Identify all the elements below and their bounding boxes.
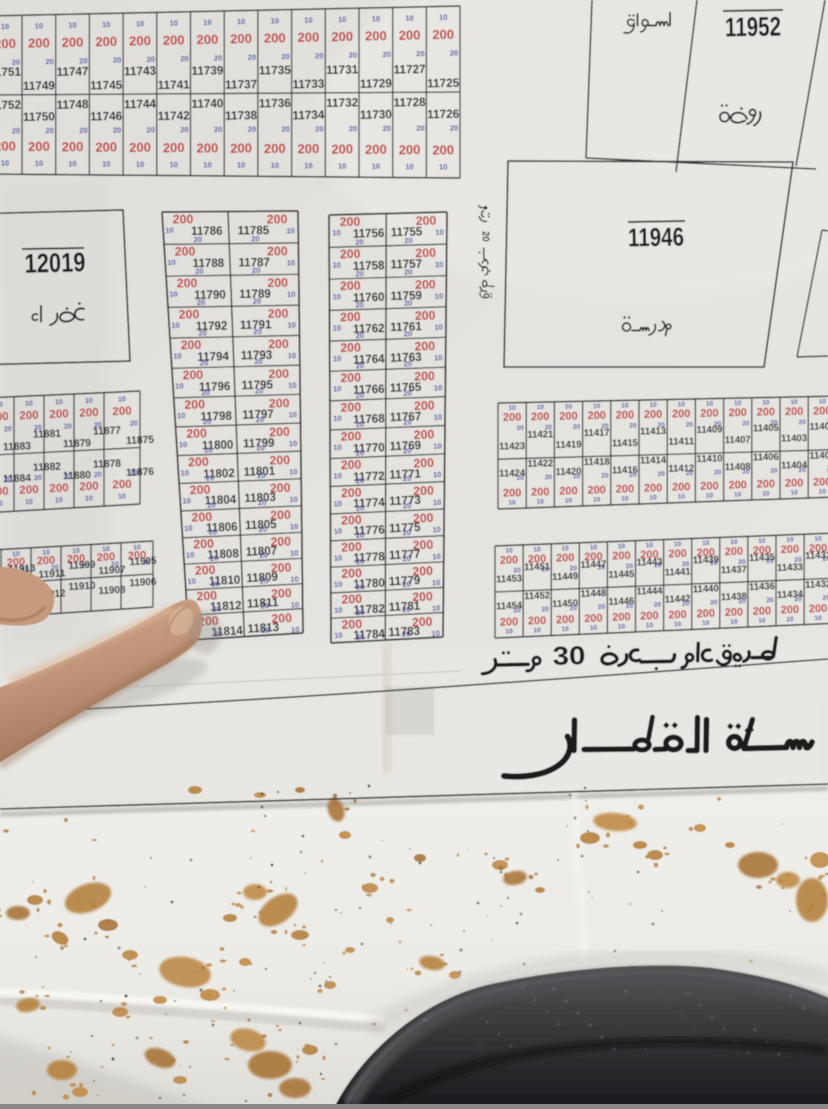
svg-text:10: 10 — [432, 525, 441, 534]
svg-text:200: 200 — [399, 142, 421, 157]
svg-text:200: 200 — [19, 410, 39, 423]
svg-text:11431: 11431 — [805, 550, 828, 562]
svg-text:11453: 11453 — [496, 573, 523, 585]
svg-text:11432: 11432 — [805, 579, 828, 591]
svg-text:11731: 11731 — [326, 62, 359, 77]
svg-text:11406: 11406 — [753, 452, 780, 464]
svg-text:200: 200 — [696, 608, 715, 621]
svg-text:20: 20 — [403, 474, 412, 483]
svg-text:20: 20 — [200, 358, 209, 367]
svg-text:10: 10 — [618, 623, 626, 630]
svg-text:200: 200 — [559, 485, 578, 497]
svg-text:10: 10 — [646, 622, 654, 629]
svg-text:10: 10 — [1, 159, 10, 168]
svg-text:11952: 11952 — [725, 12, 782, 43]
svg-text:10: 10 — [169, 19, 178, 28]
svg-text:20: 20 — [416, 49, 425, 58]
svg-text:20: 20 — [382, 50, 391, 59]
svg-text:11747: 11747 — [56, 64, 89, 79]
svg-text:20: 20 — [416, 124, 425, 133]
svg-text:20: 20 — [259, 551, 268, 560]
svg-text:11436: 11436 — [749, 581, 776, 593]
svg-text:20: 20 — [356, 448, 365, 457]
svg-text:10: 10 — [333, 354, 342, 363]
svg-text:20: 20 — [356, 583, 365, 592]
svg-text:11736: 11736 — [259, 96, 292, 111]
svg-text:20: 20 — [214, 53, 223, 62]
svg-text:10: 10 — [372, 162, 381, 171]
svg-text:200: 200 — [503, 412, 522, 424]
svg-text:200: 200 — [724, 546, 743, 559]
svg-text:10: 10 — [290, 549, 299, 558]
svg-text:200: 200 — [196, 140, 218, 155]
svg-text:11451: 11451 — [524, 561, 551, 573]
svg-text:11443: 11443 — [636, 557, 663, 569]
svg-text:11414: 11414 — [640, 455, 667, 467]
svg-text:20: 20 — [517, 475, 525, 482]
svg-text:20: 20 — [315, 51, 324, 60]
svg-text:10: 10 — [289, 467, 298, 476]
svg-text:10: 10 — [432, 578, 441, 587]
svg-text:200: 200 — [785, 477, 804, 489]
svg-text:11946: 11946 — [628, 222, 685, 253]
svg-text:11728: 11728 — [393, 95, 426, 110]
svg-text:200: 200 — [644, 409, 663, 421]
svg-text:10: 10 — [271, 16, 280, 25]
svg-text:10: 10 — [434, 353, 443, 362]
svg-text:200: 200 — [0, 138, 16, 153]
svg-text:10: 10 — [203, 18, 212, 27]
svg-text:200: 200 — [267, 244, 288, 258]
svg-text:11726: 11726 — [427, 107, 460, 122]
svg-text:30: 30 — [552, 640, 586, 671]
svg-text:20: 20 — [742, 468, 750, 475]
svg-text:20: 20 — [355, 269, 364, 278]
svg-text:10: 10 — [102, 159, 111, 168]
svg-text:20: 20 — [130, 470, 138, 477]
svg-text:10: 10 — [177, 411, 186, 420]
svg-text:200: 200 — [781, 543, 800, 556]
svg-text:20: 20 — [206, 473, 215, 482]
svg-text:11881: 11881 — [33, 428, 62, 441]
svg-text:11447: 11447 — [580, 559, 607, 571]
svg-text:20: 20 — [402, 605, 411, 614]
svg-text:10: 10 — [762, 490, 770, 497]
svg-text:20: 20 — [260, 576, 269, 585]
svg-text:200: 200 — [129, 140, 151, 155]
svg-text:20: 20 — [766, 597, 774, 604]
svg-text:20: 20 — [686, 421, 694, 428]
svg-text:200: 200 — [728, 479, 747, 491]
svg-text:10: 10 — [649, 494, 657, 501]
svg-text:200: 200 — [95, 139, 117, 154]
svg-text:20: 20 — [197, 298, 205, 307]
svg-text:11878: 11878 — [93, 457, 122, 470]
svg-text:11911: 11911 — [38, 568, 66, 581]
svg-text:20: 20 — [180, 54, 189, 63]
svg-text:20: 20 — [253, 297, 261, 306]
svg-text:20: 20 — [45, 57, 54, 66]
svg-text:10: 10 — [136, 19, 145, 28]
svg-text:20: 20 — [356, 476, 365, 485]
svg-text:10: 10 — [187, 577, 196, 586]
svg-text:11737: 11737 — [225, 77, 258, 92]
svg-text:10: 10 — [333, 499, 342, 508]
svg-text:10: 10 — [674, 621, 682, 628]
svg-text:10: 10 — [286, 226, 294, 235]
svg-text:20: 20 — [281, 52, 290, 61]
svg-text:10: 10 — [173, 351, 182, 360]
svg-text:200: 200 — [79, 407, 99, 420]
svg-text:20: 20 — [355, 237, 364, 246]
svg-text:20: 20 — [403, 389, 412, 398]
svg-text:11437: 11437 — [721, 564, 748, 576]
svg-text:200: 200 — [163, 32, 185, 47]
svg-text:20: 20 — [402, 528, 411, 537]
svg-text:20: 20 — [403, 501, 412, 510]
svg-text:200: 200 — [616, 483, 635, 495]
svg-text:20: 20 — [794, 596, 802, 603]
svg-text:200: 200 — [0, 36, 16, 51]
svg-text:11725: 11725 — [427, 76, 460, 91]
svg-text:20: 20 — [281, 125, 290, 134]
svg-text:200: 200 — [0, 411, 9, 424]
svg-text:11875: 11875 — [126, 434, 155, 447]
svg-text:10: 10 — [561, 626, 569, 633]
svg-text:20: 20 — [355, 391, 364, 400]
svg-text:11732: 11732 — [326, 95, 359, 110]
svg-text:11744: 11744 — [124, 97, 157, 112]
svg-text:20: 20 — [629, 423, 637, 430]
svg-text:20: 20 — [4, 426, 12, 433]
svg-text:20: 20 — [629, 472, 637, 479]
svg-text:10: 10 — [287, 290, 295, 299]
svg-text:200: 200 — [230, 140, 252, 155]
svg-text:20: 20 — [403, 418, 412, 427]
svg-text:11417: 11417 — [584, 428, 611, 440]
svg-text:200: 200 — [432, 27, 454, 42]
svg-text:200: 200 — [95, 34, 117, 49]
svg-text:11908: 11908 — [98, 585, 126, 598]
svg-text:10: 10 — [338, 15, 347, 24]
svg-text:20: 20 — [248, 125, 257, 134]
svg-text:10: 10 — [68, 159, 77, 168]
svg-text:200: 200 — [0, 486, 9, 499]
svg-text:10: 10 — [433, 413, 442, 422]
svg-text:11448: 11448 — [580, 588, 607, 600]
svg-text:20: 20 — [64, 473, 72, 480]
svg-text:11421: 11421 — [527, 429, 554, 441]
svg-text:10: 10 — [334, 631, 343, 640]
svg-text:10: 10 — [758, 617, 766, 624]
svg-text:20: 20 — [573, 424, 581, 431]
svg-text:200: 200 — [432, 142, 454, 157]
svg-text:200: 200 — [399, 27, 421, 42]
svg-text:20: 20 — [45, 126, 54, 135]
svg-text:200: 200 — [556, 552, 575, 565]
svg-text:12019: 12019 — [24, 247, 86, 279]
svg-text:20: 20 — [742, 420, 750, 427]
svg-text:200: 200 — [644, 482, 663, 494]
svg-text:10: 10 — [431, 629, 440, 638]
svg-text:10: 10 — [136, 160, 145, 169]
svg-text:200: 200 — [500, 616, 519, 629]
svg-text:20: 20 — [251, 234, 259, 243]
svg-text:200: 200 — [49, 482, 69, 495]
svg-text:20: 20 — [130, 420, 138, 427]
svg-text:200: 200 — [700, 408, 719, 420]
svg-text:10: 10 — [433, 470, 442, 479]
svg-text:10: 10 — [439, 13, 448, 22]
svg-text:10: 10 — [290, 600, 299, 609]
svg-text:20: 20 — [626, 603, 634, 610]
svg-text:10: 10 — [179, 440, 188, 449]
svg-text:20: 20 — [254, 357, 263, 366]
svg-text:200: 200 — [672, 481, 691, 493]
svg-text:20: 20 — [258, 525, 267, 534]
svg-text:20: 20 — [198, 328, 207, 337]
svg-text:20: 20 — [598, 604, 606, 611]
svg-text:20: 20 — [212, 604, 221, 613]
svg-text:10: 10 — [165, 226, 173, 235]
svg-text:20: 20 — [214, 125, 223, 134]
svg-text:200: 200 — [267, 212, 288, 226]
svg-text:20: 20 — [194, 235, 202, 244]
svg-text:10: 10 — [702, 620, 710, 627]
svg-text:11449: 11449 — [552, 571, 579, 583]
svg-text:11407: 11407 — [725, 435, 752, 447]
svg-text:10: 10 — [68, 21, 77, 30]
svg-text:11745: 11745 — [90, 78, 123, 93]
svg-text:10: 10 — [334, 580, 343, 589]
svg-text:10: 10 — [291, 625, 300, 634]
svg-text:20: 20 — [147, 55, 156, 64]
svg-text:10: 10 — [433, 498, 442, 507]
svg-text:10: 10 — [203, 160, 212, 169]
svg-text:20: 20 — [195, 267, 203, 276]
svg-text:10: 10 — [435, 291, 444, 300]
svg-text:20: 20 — [207, 501, 216, 510]
svg-text:10: 10 — [289, 439, 298, 448]
svg-text:200: 200 — [61, 34, 83, 49]
svg-text:20: 20 — [480, 231, 491, 242]
svg-text:11444: 11444 — [636, 586, 663, 598]
svg-text:11734: 11734 — [292, 108, 325, 123]
svg-text:20: 20 — [517, 425, 525, 432]
svg-text:20: 20 — [113, 56, 122, 65]
svg-text:200: 200 — [528, 615, 547, 628]
svg-text:11743: 11743 — [124, 64, 157, 79]
svg-text:10: 10 — [333, 384, 342, 393]
svg-text:20: 20 — [799, 467, 807, 474]
svg-text:200: 200 — [640, 610, 659, 623]
svg-text:20: 20 — [349, 51, 358, 60]
svg-text:10: 10 — [537, 498, 545, 505]
svg-text:11422: 11422 — [527, 458, 554, 470]
svg-text:20: 20 — [404, 299, 413, 308]
svg-text:20: 20 — [822, 595, 828, 602]
svg-text:11413: 11413 — [640, 426, 667, 438]
svg-text:10: 10 — [289, 495, 298, 504]
svg-text:11739: 11739 — [191, 63, 224, 78]
svg-text:10: 10 — [169, 160, 178, 169]
svg-text:200: 200 — [297, 141, 319, 156]
svg-text:11409: 11409 — [696, 424, 723, 436]
svg-text:11402: 11402 — [809, 450, 828, 462]
svg-text:20: 20 — [204, 445, 213, 454]
svg-text:10: 10 — [184, 524, 193, 533]
svg-text:10: 10 — [334, 527, 343, 536]
svg-text:10: 10 — [181, 468, 190, 477]
svg-text:20: 20 — [404, 267, 413, 276]
svg-text:10: 10 — [55, 399, 63, 406]
svg-text:10: 10 — [288, 351, 297, 360]
svg-text:20: 20 — [208, 527, 217, 536]
svg-text:11445: 11445 — [608, 569, 635, 581]
svg-text:11423: 11423 — [499, 441, 526, 453]
svg-text:20: 20 — [356, 504, 365, 513]
svg-text:10: 10 — [332, 228, 341, 237]
svg-text:20: 20 — [513, 607, 521, 614]
svg-text:11439: 11439 — [693, 554, 720, 566]
svg-text:10: 10 — [287, 258, 295, 267]
svg-text:11905: 11905 — [129, 556, 157, 569]
svg-text:20: 20 — [355, 300, 364, 309]
svg-text:20: 20 — [402, 629, 411, 638]
svg-text:10: 10 — [333, 471, 342, 480]
svg-text:11883: 11883 — [3, 440, 32, 453]
svg-text:200: 200 — [112, 479, 132, 492]
svg-text:200: 200 — [163, 140, 185, 155]
svg-text:200: 200 — [612, 550, 631, 563]
svg-text:20: 20 — [382, 124, 391, 133]
svg-text:200: 200 — [331, 141, 353, 156]
svg-text:200: 200 — [365, 142, 387, 157]
svg-text:10: 10 — [333, 323, 342, 332]
svg-text:10: 10 — [432, 552, 441, 561]
svg-text:10: 10 — [434, 323, 443, 332]
svg-text:20: 20 — [256, 443, 265, 452]
svg-text:10: 10 — [182, 496, 191, 505]
svg-text:20: 20 — [658, 471, 666, 478]
svg-text:11746: 11746 — [90, 109, 123, 124]
svg-text:20: 20 — [12, 126, 21, 135]
svg-text:200: 200 — [28, 35, 50, 50]
svg-text:20: 20 — [261, 626, 270, 635]
svg-text:10: 10 — [533, 627, 541, 634]
svg-text:200: 200 — [753, 605, 772, 618]
svg-text:20: 20 — [355, 361, 364, 370]
svg-text:20: 20 — [682, 600, 690, 607]
svg-text:10: 10 — [678, 493, 686, 500]
svg-text:20: 20 — [34, 475, 42, 482]
svg-text:10: 10 — [102, 20, 111, 29]
svg-text:10: 10 — [287, 321, 296, 330]
svg-text:20: 20 — [147, 125, 156, 134]
svg-text:10: 10 — [621, 495, 629, 502]
svg-text:10: 10 — [271, 161, 280, 170]
svg-text:20: 20 — [403, 359, 412, 368]
svg-text:10: 10 — [734, 491, 742, 498]
svg-text:10: 10 — [304, 16, 313, 25]
svg-text:200: 200 — [809, 603, 828, 616]
svg-text:20: 20 — [686, 470, 694, 477]
svg-text:11452: 11452 — [524, 590, 551, 602]
svg-text:11742: 11742 — [158, 108, 191, 123]
svg-text:10: 10 — [332, 260, 341, 269]
svg-text:20: 20 — [402, 580, 411, 589]
svg-text:10: 10 — [372, 14, 381, 23]
svg-text:20: 20 — [355, 331, 364, 340]
svg-text:10: 10 — [593, 496, 601, 503]
svg-text:20: 20 — [404, 329, 413, 338]
svg-text:10: 10 — [171, 321, 180, 330]
svg-text:11907: 11907 — [98, 565, 126, 578]
svg-text:200: 200 — [781, 604, 800, 617]
svg-text:200: 200 — [813, 476, 828, 488]
svg-text:20: 20 — [201, 388, 210, 397]
svg-text:20: 20 — [710, 599, 718, 606]
svg-text:20: 20 — [211, 579, 220, 588]
svg-text:11738: 11738 — [225, 108, 258, 123]
svg-text:10: 10 — [167, 258, 175, 267]
svg-text:10: 10 — [439, 162, 448, 171]
svg-text:20: 20 — [545, 474, 553, 481]
svg-text:200: 200 — [28, 139, 50, 154]
svg-text:200: 200 — [616, 409, 635, 421]
svg-text:10: 10 — [505, 628, 513, 635]
svg-text:11740: 11740 — [191, 96, 224, 111]
svg-text:20: 20 — [257, 471, 266, 480]
svg-text:200: 200 — [757, 406, 776, 418]
svg-text:20: 20 — [450, 123, 459, 132]
svg-text:200: 200 — [79, 480, 99, 493]
svg-text:20: 20 — [248, 53, 257, 62]
svg-text:11418: 11418 — [584, 457, 611, 469]
svg-text:20: 20 — [450, 48, 459, 57]
svg-text:20: 20 — [570, 605, 578, 612]
svg-text:200: 200 — [49, 408, 69, 421]
svg-text:20: 20 — [252, 266, 260, 275]
svg-text:20: 20 — [113, 126, 122, 135]
svg-text:20: 20 — [770, 468, 778, 475]
svg-text:11750: 11750 — [23, 109, 56, 124]
svg-text:11879: 11879 — [63, 437, 92, 450]
svg-text:20: 20 — [356, 530, 365, 539]
svg-text:20: 20 — [356, 420, 365, 429]
svg-text:11735: 11735 — [259, 63, 292, 78]
svg-text:200: 200 — [61, 139, 83, 154]
svg-text:20: 20 — [714, 469, 722, 476]
svg-text:10: 10 — [814, 615, 822, 622]
svg-text:11403: 11403 — [781, 433, 808, 445]
svg-text:10: 10 — [790, 489, 798, 496]
svg-text:10: 10 — [432, 604, 441, 613]
svg-text:11433: 11433 — [777, 562, 804, 574]
svg-text:20: 20 — [255, 386, 264, 395]
svg-text:20: 20 — [654, 601, 662, 608]
svg-text:10: 10 — [435, 260, 444, 269]
svg-text:10: 10 — [85, 495, 93, 502]
svg-text:10: 10 — [169, 290, 177, 299]
svg-text:200: 200 — [531, 411, 550, 423]
svg-text:200: 200 — [612, 611, 631, 624]
svg-text:10: 10 — [288, 410, 297, 419]
svg-text:20: 20 — [64, 423, 72, 430]
svg-text:200: 200 — [587, 410, 606, 422]
svg-text:20: 20 — [4, 476, 12, 483]
svg-text:10: 10 — [55, 497, 63, 504]
